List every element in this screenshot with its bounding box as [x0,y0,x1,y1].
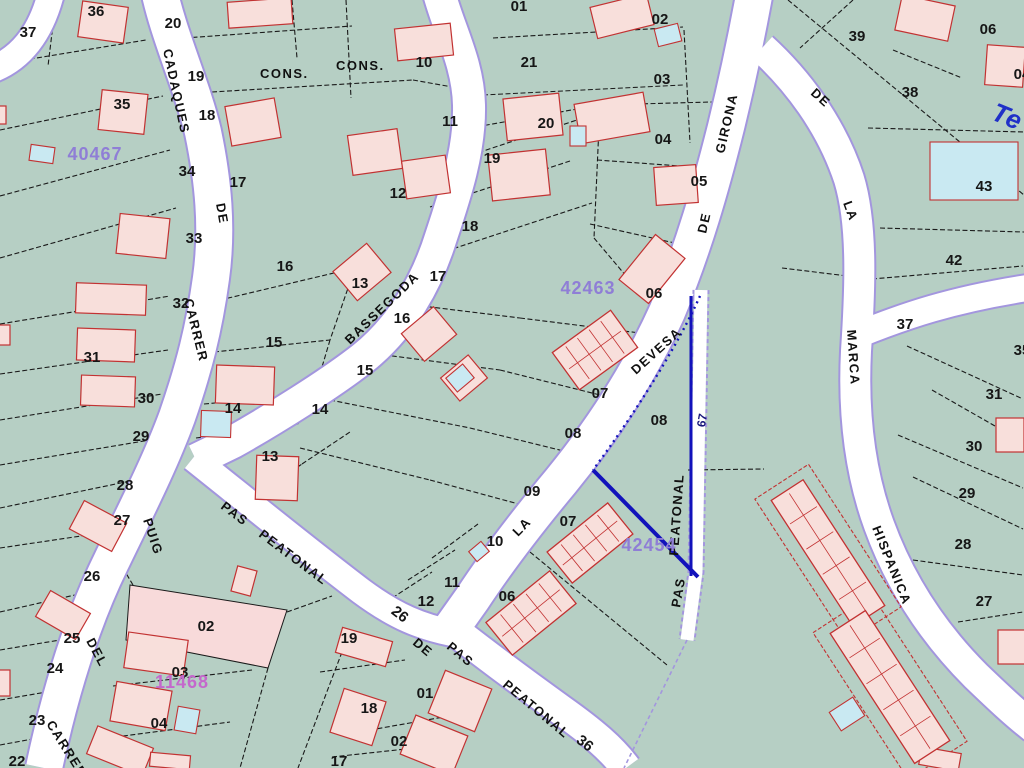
parcel-number: 11 [444,574,460,591]
building [215,365,274,405]
parcel-number: 14 [312,401,329,418]
swimming-pool [570,126,586,146]
parcel-number: 24 [47,660,64,677]
parcel-number: 15 [266,334,283,351]
parcel-number: 09 [524,483,541,500]
cadastral-reference: 40467 [67,144,122,164]
parcel-number: 36 [88,3,105,20]
parcel-number: 18 [462,218,479,235]
parcel-number: 02 [198,618,215,635]
parcel-number: 22 [9,753,26,768]
cadastral-map: CADAQUESDECARRERPUIGDELCARRERBASSEGODADE… [0,0,1024,768]
parcel-number: 07 [560,513,577,530]
parcel-number: 05 [691,173,708,190]
cadastral-reference: 42454 [621,535,676,555]
parcel-number: 04 [151,715,168,732]
building [227,0,293,28]
cadastral-reference: 42463 [560,278,615,298]
parcel-number: 01 [511,0,528,15]
parcel-number: 17 [430,268,447,285]
cadastral-reference: 11468 [155,672,209,692]
parcel-number: 03 [654,71,671,88]
building [998,630,1024,664]
building [225,98,281,146]
parcel-number: 38 [902,84,919,101]
parcel-number: 04 [655,131,672,148]
parcel-number: 27 [976,593,993,610]
parcel-number: 19 [484,150,501,167]
parcel-number: 33 [186,230,203,247]
parcel-number: 02 [391,733,408,750]
parcel-number: 43 [976,178,993,195]
cadastral-map-viewport[interactable]: CADAQUESDECARRERPUIGDELCARRERBASSEGODADE… [0,0,1024,768]
parcel-number: 31 [986,386,1003,403]
parcel-number: 37 [20,24,37,41]
parcel-number: 23 [29,712,46,729]
parcel-number: 42 [946,252,963,269]
parcel-number: 14 [225,400,242,417]
swimming-pool [29,144,55,163]
parcel-number: 19 [341,630,358,647]
building [116,213,170,258]
parcel-number: 28 [955,536,972,553]
parcel-number: 35 [114,96,131,113]
parcel-number: 06 [499,588,516,605]
building [0,670,10,696]
parcel-number: 16 [394,310,411,327]
building [75,283,146,315]
parcel-number: 29 [959,485,976,502]
parcel-number: 32 [173,295,190,312]
parcel-number: 06 [980,21,997,38]
parcel-number: 13 [352,275,369,292]
parcel-number: 31 [84,349,101,366]
swimming-pool [174,706,200,733]
street-label: CONS. [260,66,309,81]
parcel-number: 06 [646,285,663,302]
parcel-number: 01 [417,685,434,702]
building [149,752,190,768]
building [996,418,1024,452]
street-label: CONS. [336,58,385,73]
parcel-number: 13 [262,448,279,465]
building [402,155,451,199]
parcel-number: 02 [652,11,669,28]
parcel-number: 18 [199,107,216,124]
parcel-number: 08 [651,412,668,429]
parcel-number: 20 [165,15,182,32]
parcel-number: 21 [521,54,538,71]
building [347,129,402,176]
parcel-number: 30 [966,438,983,455]
measurement-value: 67 [694,412,710,428]
parcel-number: 39 [849,28,866,45]
swimming-pool [930,142,1018,200]
parcel-number: 35 [1014,342,1024,359]
parcel-number: 34 [179,163,196,180]
parcel-number: 17 [230,174,247,191]
parcel-number: 37 [897,316,914,333]
parcel-number: 04 [1014,66,1024,83]
parcel-number: 12 [418,593,435,610]
parcel-number: 28 [117,477,134,494]
parcel-number: 30 [138,390,155,407]
parcel-number: 26 [84,568,101,585]
parcel-number: 20 [538,115,555,132]
parcel-number: 10 [416,54,433,71]
building [0,325,10,345]
parcel-number: 08 [565,425,582,442]
parcel-number: 18 [361,700,378,717]
parcel-number: 27 [114,512,131,529]
parcel-number: 17 [331,753,348,768]
parcel-number: 16 [277,258,294,275]
parcel-number: 11 [442,113,458,130]
parcel-number: 29 [133,428,150,445]
building [0,106,6,124]
parcel-number: 15 [357,362,374,379]
parcel-number: 19 [188,68,205,85]
parcel-number: 25 [64,630,81,647]
building [80,375,135,407]
parcel-number: 10 [487,533,504,550]
parcel-number: 07 [592,385,609,402]
parcel-number: 12 [390,185,407,202]
